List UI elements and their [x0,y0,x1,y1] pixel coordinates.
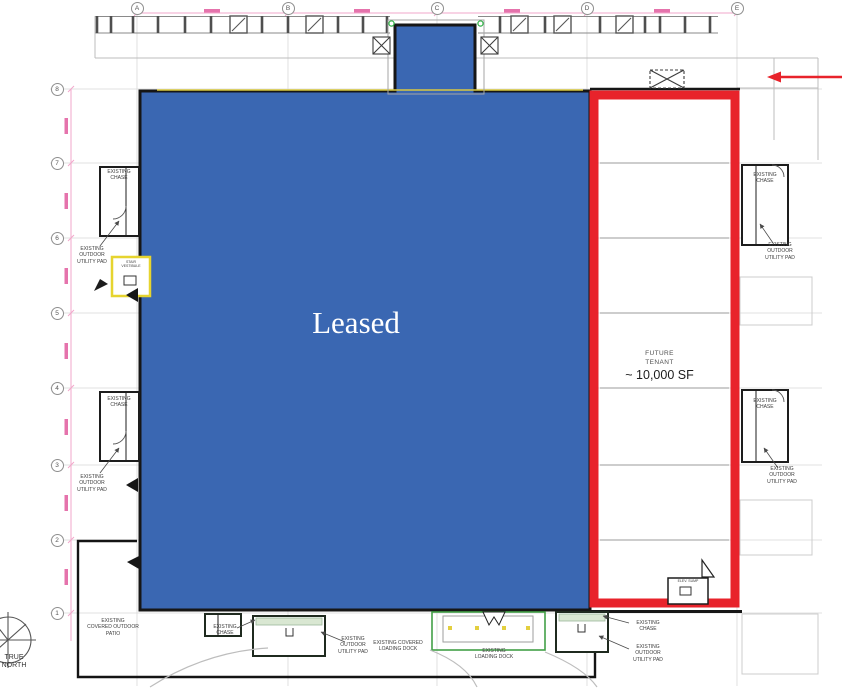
annotation-covered-loading-dock: EXISTING COVERED LOADING DOCK [372,640,424,653]
annotation-existing-chase-west-1: EXISTING CHASE [98,169,140,182]
annotation-existing-chase-east-2: EXISTING CHASE [745,398,785,411]
grid-row-2: 2 [51,534,64,547]
roof-hatch-right-icon [481,37,498,54]
annotation-utility-pad-south-2: EXISTING OUTDOOR UTILITY PAD [626,644,670,663]
grid-column-a: A [131,2,144,15]
loading-dock-shapes [432,612,545,650]
annotation-utility-pad-west-1: EXISTING OUTDOOR UTILITY PAD [70,246,114,265]
annotation-utility-pad-west-2: EXISTING OUTDOOR UTILITY PAD [70,474,114,493]
grid-row-5: 5 [51,307,64,320]
annotation-loading-dock: EXISTING LOADING DOCK [470,648,518,661]
grid-row-4: 4 [51,382,64,395]
annotation-stair-vestibule: STAIR VESTIBULE [113,261,149,269]
grid-row-8: 8 [51,83,64,96]
west-chase-rooms [100,167,139,461]
annotation-utility-pad-east-2: EXISTING OUTDOOR UTILITY PAD [760,466,804,485]
grid-row-3: 3 [51,459,64,472]
roof-hatch-callout-icon [650,70,684,88]
future-tenant-name: FUTURE TENANT [612,349,707,367]
floorplan-linework [0,0,842,688]
future-tenant-label: FUTURE TENANT ~ 10,000 SF [612,349,707,382]
grid-row-1: 1 [51,607,64,620]
true-north-label: TRUE NORTH [0,654,44,671]
grid-row-6: 6 [51,232,64,245]
annotation-existing-chase-south-1: EXISTING CHASE [205,624,245,637]
callout-arrow-icon [767,72,842,83]
grid-column-e: E [731,2,744,15]
grid-row-7: 7 [51,157,64,170]
grid-column-b: B [282,2,295,15]
floor-plan: A B C D E 8 7 6 5 4 3 2 1 Leased FUTURE … [0,0,842,688]
annotation-elev-sump: ELEV. SUMP [669,580,707,584]
future-tenant-size: ~ 10,000 SF [612,368,707,382]
roof-hatch-left-icon [373,37,390,54]
annotation-utility-pad-south-1: EXISTING OUTDOOR UTILITY PAD [330,636,376,655]
annotation-utility-pad-east-1: EXISTING OUTDOOR UTILITY PAD [758,242,802,261]
annotation-existing-chase-east-1: EXISTING CHASE [745,172,785,185]
grid-column-d: D [581,2,594,15]
grid-column-c: C [431,2,444,15]
annotation-existing-chase-south-2: EXISTING CHASE [628,620,668,633]
leased-area-label: Leased [252,305,460,341]
annotation-covered-patio: EXISTING COVERED OUTDOOR PATIO [82,618,144,637]
east-chase-rooms [742,165,788,462]
annotation-existing-chase-west-2: EXISTING CHASE [98,396,140,409]
